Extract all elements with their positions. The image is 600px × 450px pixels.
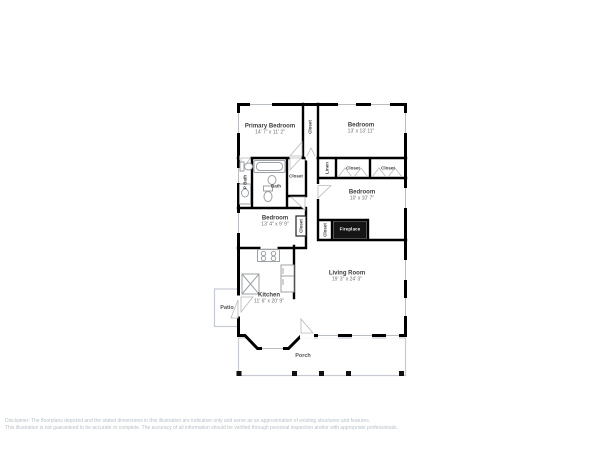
closet-row-label-2: Closet [381,165,395,170]
bedroom-left-label: Bedroom 13' 4" x 9' 9" [261,216,288,229]
primary-bedroom-label: Primary Bedroom 14' 7" x 11' 2" [245,124,295,137]
kitchen-label: Kitchen 11' 6" x 20' 9" [254,293,284,306]
kitchen-island-icon [242,274,259,294]
bedroom-right-label: Bedroom 10' x 10' 7" [349,190,375,203]
bedroom-right-closet-label: Closet [322,223,327,237]
porch-label: Porch [295,353,311,359]
linen-label: Linen [324,162,329,174]
disclaimer-line-2: This illustration is not guaranteed to b… [5,425,398,431]
disclaimer-line-1: Disclaimer: The floorplans depicted and … [5,418,370,424]
floor-plan-page: Primary Bedroom 14' 7" x 11' 2" Bedroom … [0,0,600,450]
fireplace-label: Fireplace [340,228,361,233]
patio-label: Patio [220,305,233,311]
bathtub-icon [254,161,285,173]
bath-label: Bath [271,183,281,188]
stove-icon [258,250,280,262]
bedroom-top-right-label: Bedroom 13' x 13' 11" [348,123,375,136]
hall-closet-label: Closet [289,173,303,178]
closet-row-label-1: Closet [346,165,360,170]
living-room-label: Living Room 19' 3" x 24' 3" [329,271,365,284]
bedroom-left-closet-label: Closet [298,219,303,233]
primary-bath-label: P Bath [242,175,247,189]
toilet-icon [240,162,253,171]
closet-label-top: Closet [307,120,312,134]
refrigerator-icon [281,265,294,292]
